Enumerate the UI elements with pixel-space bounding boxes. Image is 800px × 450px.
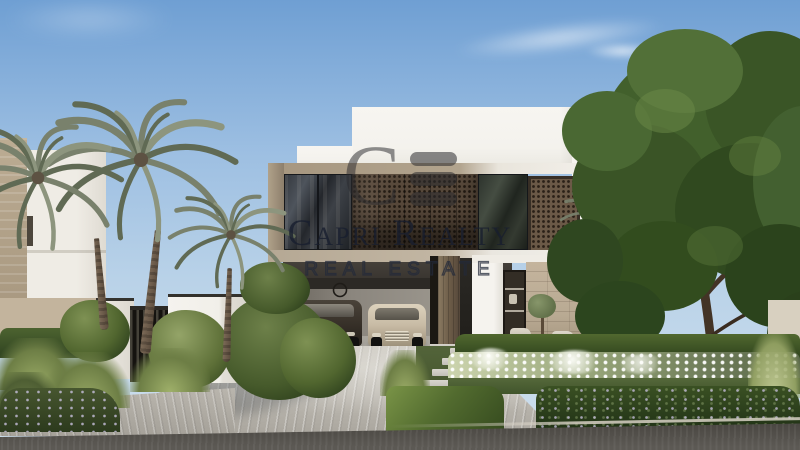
cloud bbox=[4, 2, 174, 36]
shelf-object bbox=[509, 294, 517, 304]
palm-tree-left bbox=[0, 118, 138, 254]
lavender-shrubs bbox=[0, 388, 120, 432]
entry-pivot-door bbox=[438, 256, 460, 348]
mashrabiya-screen-center bbox=[352, 174, 478, 250]
flower-puff bbox=[620, 354, 664, 374]
light-sedan-car bbox=[368, 304, 426, 346]
door-frame bbox=[430, 256, 438, 348]
grass-tuft bbox=[130, 348, 210, 392]
upper-floor-frame-top bbox=[268, 163, 588, 174]
upper-glass-window-right bbox=[478, 174, 528, 250]
flower-puff bbox=[470, 348, 512, 370]
palm-tree-mid bbox=[156, 190, 306, 292]
flower-puff bbox=[548, 350, 602, 374]
window-mullion bbox=[317, 174, 319, 250]
villa-exterior-photo: C Capri Realty REAL ESTATE bbox=[0, 0, 800, 450]
shrub bbox=[280, 318, 356, 398]
